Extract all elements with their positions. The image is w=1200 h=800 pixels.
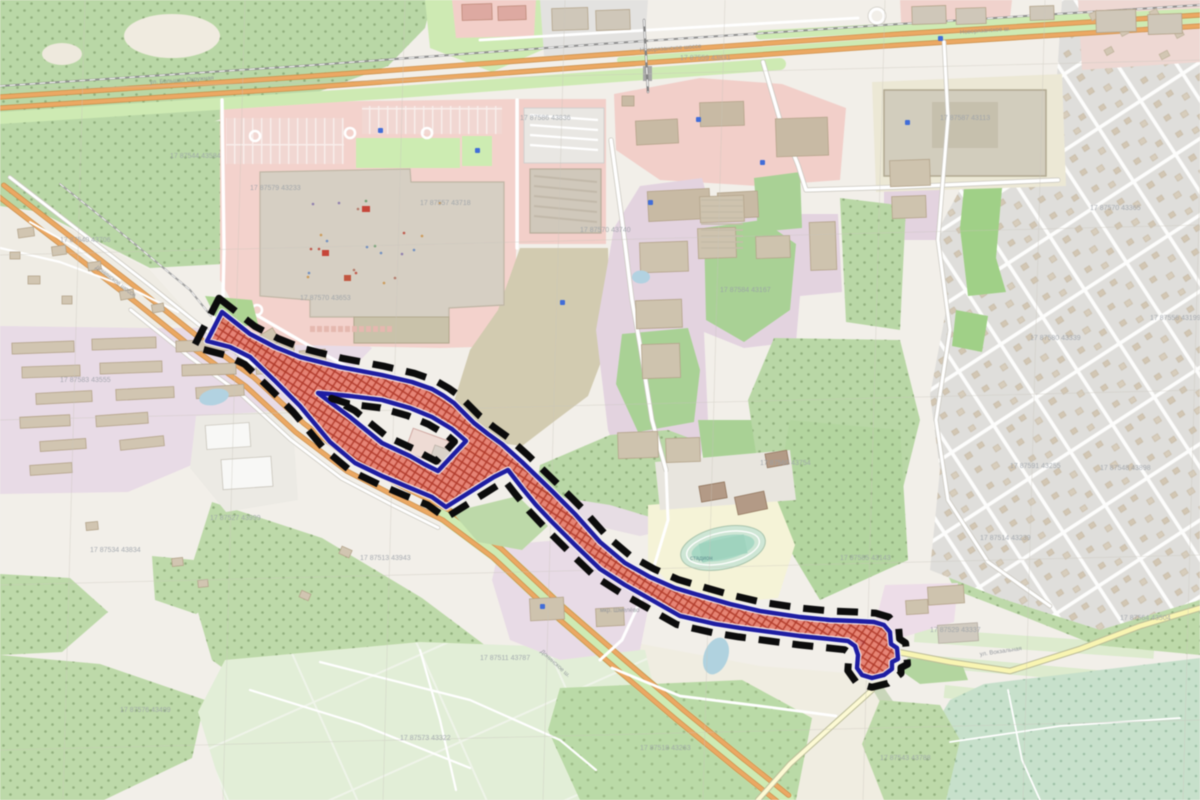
svg-text:17 87514 43239: 17 87514 43239 <box>980 535 1031 542</box>
svg-text:17 87570 43365: 17 87570 43365 <box>1090 205 1141 212</box>
svg-text:17 87548 43898: 17 87548 43898 <box>1100 465 1151 472</box>
svg-text:17 87579 43233: 17 87579 43233 <box>250 185 301 192</box>
svg-text:17 87556 43199: 17 87556 43199 <box>1150 315 1200 322</box>
svg-text:17 87583 43555: 17 87583 43555 <box>60 377 111 384</box>
svg-text:17 87527 43999: 17 87527 43999 <box>210 515 261 522</box>
svg-text:мкр. Шмелёво: мкр. Шмелёво <box>600 608 640 614</box>
svg-text:17 87576 43499: 17 87576 43499 <box>120 707 171 714</box>
svg-text:17 87570 43740: 17 87570 43740 <box>580 227 631 234</box>
svg-text:17 87540 43706: 17 87540 43706 <box>60 237 111 244</box>
svg-text:17 87513 43943: 17 87513 43943 <box>360 555 411 562</box>
svg-text:17 87559 43831: 17 87559 43831 <box>680 55 731 62</box>
svg-text:17 87573 43322: 17 87573 43322 <box>400 735 451 742</box>
svg-text:17 87564 43504: 17 87564 43504 <box>1120 615 1171 622</box>
svg-text:стадион: стадион <box>690 556 713 562</box>
svg-text:17 87534 43834: 17 87534 43834 <box>90 547 141 554</box>
svg-text:17 87543 43788: 17 87543 43788 <box>880 755 931 762</box>
svg-text:17 87584 43167: 17 87584 43167 <box>720 287 771 294</box>
svg-text:17 87570 43653: 17 87570 43653 <box>300 295 351 302</box>
svg-text:17 87560 43754: 17 87560 43754 <box>760 460 811 467</box>
svg-text:17 87544 43584: 17 87544 43584 <box>170 153 221 160</box>
svg-text:17 87557 43718: 17 87557 43718 <box>420 200 471 207</box>
svg-text:17 87586 43836: 17 87586 43836 <box>520 115 571 122</box>
svg-text:17 87591 43255: 17 87591 43255 <box>1010 463 1061 470</box>
svg-text:17 87518 43263: 17 87518 43263 <box>640 745 691 752</box>
svg-text:17 87585 43143: 17 87585 43143 <box>840 555 891 562</box>
svg-text:17 87529 43337: 17 87529 43337 <box>930 627 981 634</box>
svg-text:17 87587 43113: 17 87587 43113 <box>940 115 990 122</box>
svg-text:17 87511 43787: 17 87511 43787 <box>480 655 530 662</box>
svg-text:17 87580 43339: 17 87580 43339 <box>1030 335 1081 342</box>
